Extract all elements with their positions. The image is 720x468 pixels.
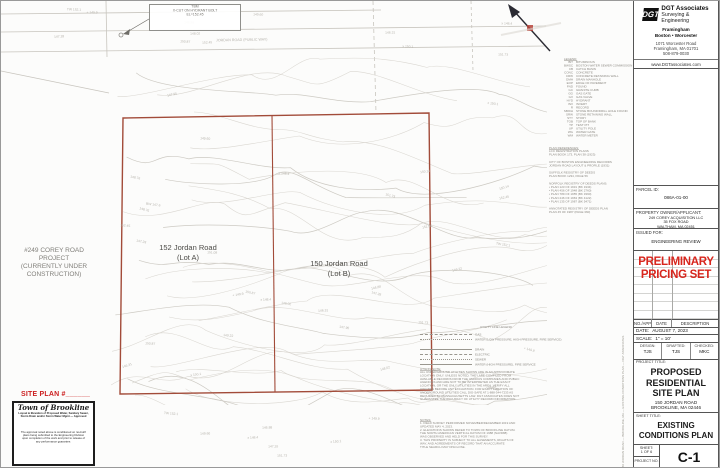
site-plan-sheet: 149.22148.76150.14151.08147.95152.45146.…: [0, 0, 720, 468]
brookline-stamp-subtitle: Layout & Elevation of Proposed Water, Sa…: [16, 412, 91, 418]
north-arrow-icon: [501, 4, 561, 51]
sheet-title: EXISTING CONDITIONS PLAN: [634, 421, 718, 440]
brookline-stamp-date: DATE: [16, 464, 91, 466]
design-label: DESIGN:: [634, 344, 661, 348]
legend-row: WMWATER METER: [547, 135, 635, 139]
project-address: 150 JORDAN ROAD BROOKLINE, MA 02446: [634, 400, 718, 411]
lot-b-label: 150 Jordan Road (Lot B): [283, 259, 395, 279]
spot-elevation: 151.73: [498, 53, 508, 56]
parcel-id-section: PARCEL ID: 086A-01-00: [634, 186, 718, 209]
spot-elevation: 149.60: [200, 432, 210, 436]
parcel-id-value: 086A-01-00: [634, 195, 718, 200]
spot-elevation: 149.60: [253, 13, 263, 17]
spot-elevation: 149.60: [200, 137, 210, 141]
scale-label: SCALE:: [636, 336, 652, 341]
spot-elevation: 146.31: [385, 31, 395, 34]
firm-name: DGT Associates: [661, 5, 708, 12]
date-label: DATE:: [636, 328, 649, 333]
dgt-logo: DGT: [642, 8, 659, 21]
sheet-number: C-1: [660, 445, 718, 468]
utility-note-body: ALL UNDERGROUND UTILITIES SHOWN ARE IN A…: [420, 371, 544, 402]
tbm-benchmark-note: TBM X-CUT ON HYDRANT BOLT EL=152.45: [149, 4, 241, 31]
issued-for-value: ENGINEERING REVIEW: [634, 239, 718, 244]
project-title-label-row: PROJECT TITLE:: [634, 359, 718, 366]
owner-value: 249 COREY ACQUISITION LLC 35 FOX ROAD WA…: [634, 216, 718, 229]
general-notes: NOTES: 1. FIELD SURVEY PERFORMED NOVEMBE…: [420, 419, 544, 468]
rev-col-no: NO./APP: [634, 319, 652, 327]
sheet-number-block: SHEET:1 OF 6 PROJECT NO. C-1: [634, 444, 718, 468]
stamp-line-2: PRICING SET: [633, 269, 719, 282]
date-value: AUGUST 7, 2023: [652, 328, 688, 333]
checked-value: MKC: [691, 349, 718, 354]
corey-road-project-note: #249 COREY ROAD PROJECT (CURRENTLY UNDER…: [3, 247, 105, 279]
project-title: PROPOSED RESIDENTIAL SITE PLAN: [634, 367, 718, 399]
spot-elevation: 151.73: [418, 321, 428, 325]
tbm-benchmark-text: TBM X-CUT ON HYDRANT BOLT EL=152.45: [150, 5, 240, 17]
spot-elevation: x 148.4: [248, 436, 259, 440]
plan-references-body: LCC REGISTRATION PLANS PLAN BOOK 173, PL…: [549, 150, 637, 215]
preliminary-pricing-stamp: PRELIMINARY PRICING SET: [633, 256, 719, 282]
owner-section: PROPERTY OWNER/APPLICANT: 249 COREY ACQU…: [634, 209, 718, 229]
scale-value: 1" = 10': [655, 336, 670, 341]
parcel-id-label: PARCEL ID:: [634, 186, 718, 193]
consultant-box: [634, 69, 718, 186]
rev-col-date: DATE: [652, 319, 672, 327]
spot-elevation: 150.87: [180, 40, 190, 44]
site-plan-number-label: SITE PLAN #______: [21, 391, 90, 398]
spot-elevation: 147.28: [54, 35, 64, 39]
date-row: DATE: AUGUST 7, 2023: [634, 327, 718, 335]
spot-elevation: 148.02: [190, 32, 200, 36]
issued-for-label: ISSUED FOR:: [634, 229, 718, 236]
general-notes-body: 1. FIELD SURVEY PERFORMED NOVEMBER/DECEM…: [420, 422, 544, 449]
title-block: DGT DGT Associates Surveying & Engineeri…: [633, 1, 719, 468]
spot-elevation: 152.45: [120, 223, 130, 227]
plan-references: PLAN REFERENCES: LCC REGISTRATION PLANS …: [549, 147, 637, 239]
firm-office-2: Boston • Worcester: [634, 33, 718, 39]
utility-legend-row: WATER (HIGH PRESSURE), FIRE SERVICE: [420, 362, 544, 367]
spot-elevation: 146.88: [262, 426, 272, 429]
spot-elevation: 150.87: [145, 342, 155, 346]
town-of-brookline-stamp: Town of Brookline Layout & Elevation of …: [12, 401, 95, 466]
firm-phone: 508-879-0030: [634, 51, 718, 56]
spot-elevation: 146.31: [318, 309, 328, 313]
legend-rows: BITBITUMINOUSBWSCBOSTON WATER SEWER COMM…: [547, 61, 635, 138]
utility-line-legend-title: UTILITY LINE LEGEND: [480, 326, 604, 329]
spot-elevation: 151.73: [277, 454, 287, 458]
sheet-count: SHEET:1 OF 6: [634, 445, 659, 457]
drafted-label: DRAFTED:: [662, 344, 689, 348]
utility-line-legend: UTILITY LINE LEGEND GASWATER (LOW PRESSU…: [420, 326, 544, 367]
drafted-value: TJS: [662, 349, 689, 354]
firm-tagline-2: Engineering: [661, 18, 708, 24]
design-value: TJS: [634, 349, 661, 354]
road-edges: [1, 1, 546, 113]
firm-website[interactable]: www.DGTassociates.com: [634, 59, 718, 67]
spot-elevation: + 149.9: [369, 417, 380, 421]
utility-legend-row: WATER (LOW PRESSURE, HIGH PRESSURE, FIRE…: [420, 337, 544, 342]
drawing-margin-note: 150 JORDAN ROAD — BROOKLINE, MA — EXISTI…: [622, 336, 625, 468]
spot-elevation: 147.28: [268, 445, 278, 448]
design-drafted-checked-row: DESIGN: TJS DRAFTED: TJS CHECKED: MKC: [634, 343, 718, 360]
spot-elevation: TW 152.1: [67, 8, 81, 12]
spot-elevation: 152.45: [202, 41, 212, 45]
stamp-line-1: PRELIMINARY: [633, 256, 719, 269]
rev-col-description: DESCRIPTION: [672, 319, 718, 327]
spot-elevation: + 149.9: [87, 11, 98, 15]
sheet-title-label-row: SHEET TITLE:: [634, 412, 718, 419]
abbreviation-legend: LEGEND: BITBITUMINOUSBWSCBOSTON WATER SE…: [547, 58, 635, 146]
utility-line-legend-rows: GASWATER (LOW PRESSURE, HIGH PRESSURE, F…: [420, 332, 544, 367]
brookline-stamp-body: The approval noted above is conditioned …: [16, 431, 91, 443]
firm-header: DGT DGT Associates Surveying & Engineeri…: [634, 1, 718, 69]
checked-label: CHECKED:: [691, 344, 718, 348]
owner-label: PROPERTY OWNER/APPLICANT:: [634, 209, 718, 216]
issued-for-section: ISSUED FOR: ENGINEERING REVIEW: [634, 229, 718, 251]
lot-a-label: 152 Jordan Road (Lot A): [129, 243, 247, 263]
hydrant-symbol: [119, 33, 123, 37]
scale-row: SCALE: 1" = 10': [634, 335, 718, 343]
brookline-stamp-title: Town of Brookline: [16, 404, 91, 412]
tbm-leader-arrowhead: [123, 29, 130, 35]
project-no-label: PROJECT NO.: [634, 457, 659, 468]
